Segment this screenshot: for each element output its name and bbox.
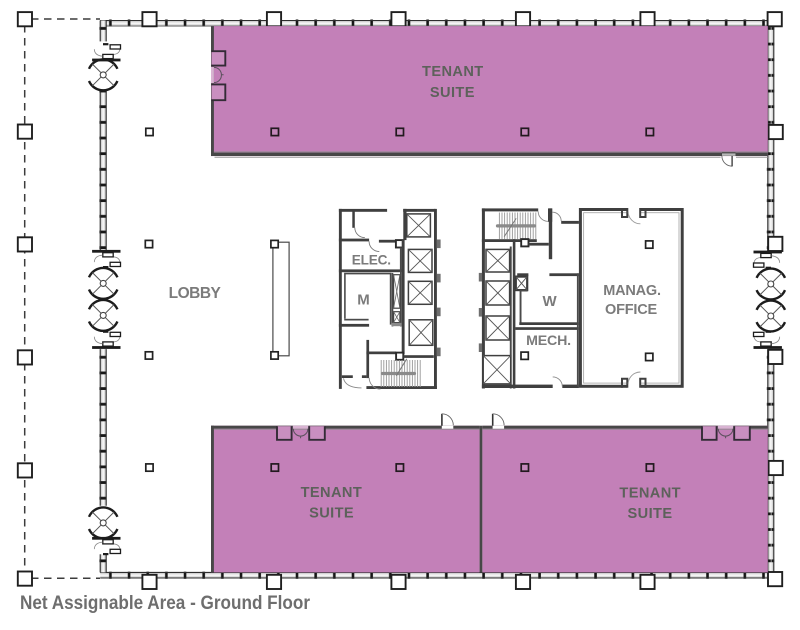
svg-text:MANAG.: MANAG. <box>603 283 661 299</box>
svg-text:TENANT: TENANT <box>301 485 363 501</box>
svg-text:Net Assignable Area - Ground F: Net Assignable Area - Ground Floor <box>20 593 311 614</box>
svg-text:MECH.: MECH. <box>526 333 571 349</box>
svg-text:W: W <box>543 293 558 310</box>
svg-text:ELEC.: ELEC. <box>352 253 391 268</box>
svg-text:TENANT: TENANT <box>422 64 484 80</box>
svg-text:TENANT: TENANT <box>619 485 681 501</box>
svg-text:SUITE: SUITE <box>309 506 354 522</box>
svg-text:M: M <box>357 292 370 309</box>
svg-text:OFFICE: OFFICE <box>605 302 657 318</box>
svg-text:SUITE: SUITE <box>628 506 673 522</box>
svg-text:LOBBY: LOBBY <box>169 285 222 302</box>
svg-text:SUITE: SUITE <box>430 85 475 101</box>
